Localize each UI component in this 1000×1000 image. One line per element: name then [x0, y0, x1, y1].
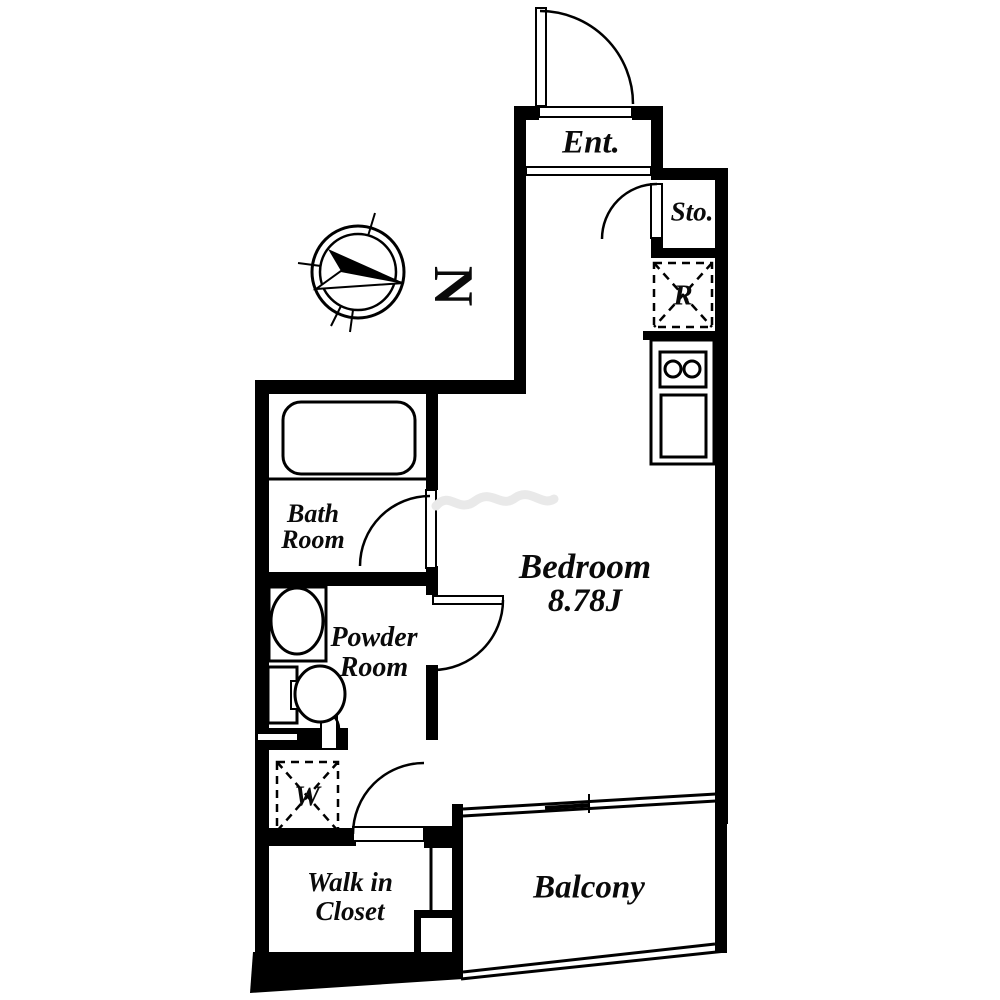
wic-door-arc	[353, 763, 424, 834]
compass-north-letter: N	[425, 266, 481, 306]
label-entrance: Ent.	[562, 127, 620, 160]
wall-powder-east-lower	[426, 665, 438, 740]
wall-bath-powder-divider	[255, 572, 438, 586]
floor-plan: Ent. Sto. R Bedroom 8.78J Bath Room Powd…	[0, 0, 1000, 1000]
label-refrigerator: R	[673, 282, 692, 311]
entrance-step	[526, 167, 651, 175]
label-wic-line1: Walk in	[307, 868, 393, 897]
entrance-door-arc	[540, 11, 633, 104]
label-walk-in-closet: Walk in Closet	[307, 868, 393, 926]
storage-door-leaf	[651, 184, 662, 238]
label-washer: W	[294, 783, 320, 812]
powder-door-leaf	[433, 596, 503, 604]
wic-door-leaf	[353, 827, 424, 841]
balcony-edge-inner	[463, 944, 715, 972]
label-bedroom-area: 8.78J	[519, 584, 651, 618]
wall-slit	[258, 734, 297, 740]
wall-wic-top-left	[255, 828, 356, 846]
label-bath-line1: Bath	[281, 501, 345, 527]
entrance-threshold	[539, 107, 632, 117]
label-bath-room: Bath Room	[281, 501, 345, 553]
wall-wing-top	[255, 380, 526, 394]
label-bedroom-name: Bedroom	[519, 550, 651, 584]
stove-burner-left	[665, 361, 681, 377]
washbasin-bowl	[271, 588, 323, 654]
stove-burner-right	[684, 361, 700, 377]
compass-needle-outline	[316, 271, 404, 289]
powder-door-arc	[433, 600, 503, 670]
wall-bath-east-upper	[426, 380, 438, 490]
kitchen-sink	[661, 395, 706, 457]
label-powder-line2: Room	[330, 653, 417, 683]
wall-ent-right	[651, 106, 663, 172]
bathtub	[283, 402, 415, 474]
entrance-door-leaf	[536, 8, 546, 106]
label-storage: Sto.	[671, 199, 714, 226]
storage-door-arc	[602, 184, 657, 239]
label-bath-line2: Room	[281, 527, 345, 553]
label-powder-room: Powder Room	[330, 623, 417, 683]
wall-bottom-slanted	[250, 952, 463, 993]
watermark-smudge	[436, 495, 554, 506]
label-bedroom: Bedroom 8.78J	[519, 550, 651, 618]
wall-balcony-east	[715, 794, 727, 953]
label-powder-line1: Powder	[330, 623, 417, 653]
wall-sto-bottom	[651, 248, 728, 258]
wall-notch-left	[414, 918, 421, 956]
wall-hall-left	[514, 106, 526, 394]
wall-balcony-west	[452, 804, 463, 956]
balcony-edge-outer	[461, 951, 726, 979]
wall-east-outer	[715, 168, 728, 824]
compass	[298, 213, 404, 332]
wall-powder-east-upper	[426, 586, 438, 595]
label-balcony: Balcony	[533, 872, 645, 905]
bath-door-arc	[360, 496, 430, 566]
label-wic-line2: Closet	[307, 897, 393, 926]
floor-plan-linework	[0, 0, 1000, 1000]
